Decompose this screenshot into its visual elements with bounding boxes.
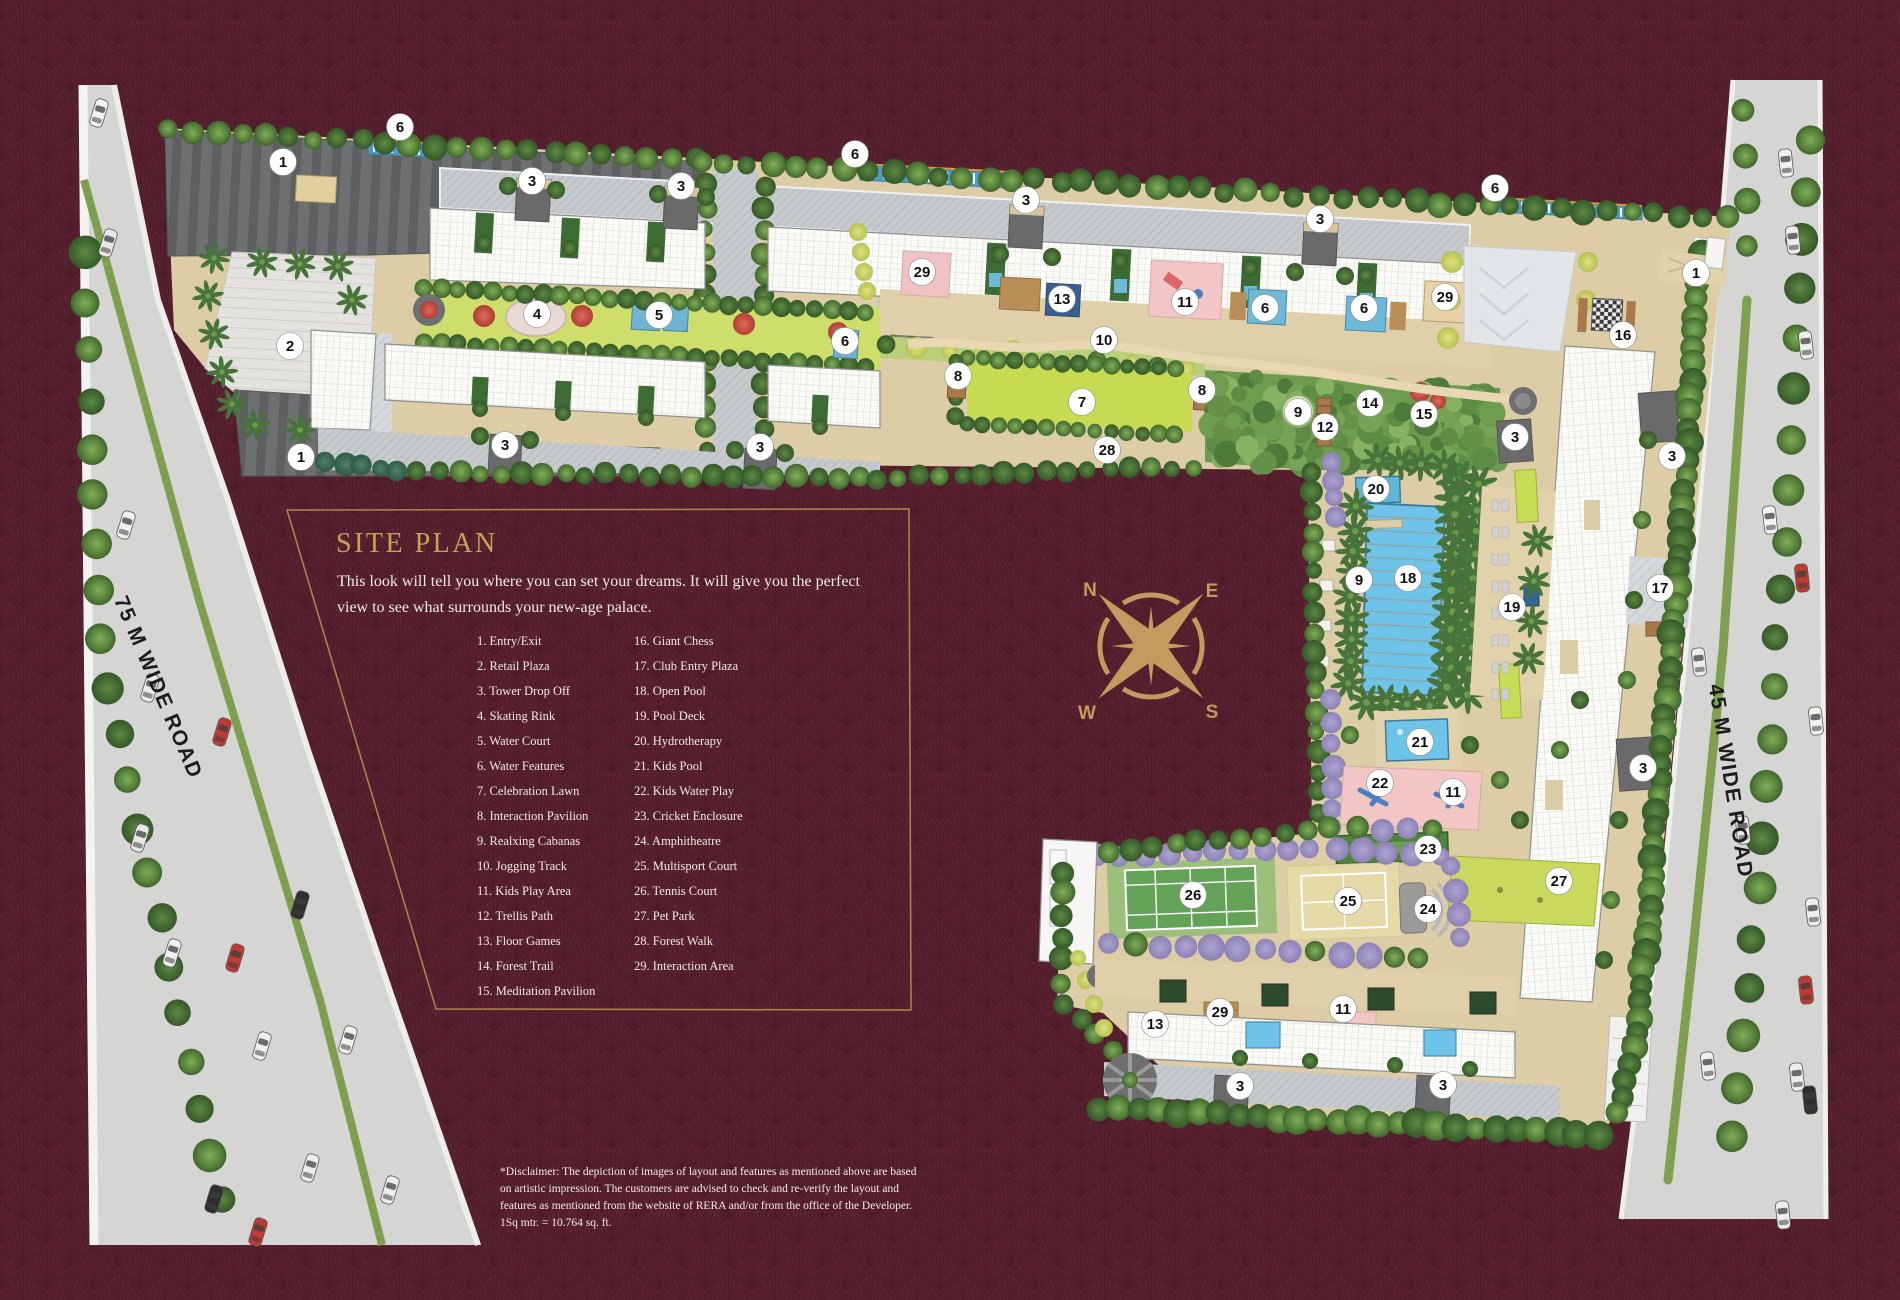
svg-text:2: 2 bbox=[286, 338, 294, 355]
svg-text:15: 15 bbox=[1416, 406, 1433, 423]
svg-text:3: 3 bbox=[528, 173, 536, 190]
svg-text:29: 29 bbox=[1212, 1004, 1229, 1021]
svg-text:1: 1 bbox=[297, 449, 305, 466]
svg-text:3: 3 bbox=[756, 439, 764, 456]
svg-text:11: 11 bbox=[1177, 294, 1193, 311]
svg-text:9: 9 bbox=[1355, 572, 1363, 589]
svg-text:6: 6 bbox=[1360, 300, 1368, 317]
svg-text:6: 6 bbox=[396, 119, 404, 136]
svg-text:3: 3 bbox=[1511, 429, 1519, 446]
svg-text:1: 1 bbox=[279, 154, 287, 171]
svg-text:N: N bbox=[1083, 580, 1097, 601]
svg-text:16: 16 bbox=[1615, 327, 1632, 344]
svg-text:29: 29 bbox=[1437, 289, 1454, 306]
svg-text:23: 23 bbox=[1420, 841, 1437, 858]
svg-text:21: 21 bbox=[1412, 734, 1429, 751]
svg-text:3: 3 bbox=[1668, 448, 1676, 465]
svg-text:26: 26 bbox=[1185, 887, 1202, 904]
svg-text:10: 10 bbox=[1096, 332, 1113, 349]
svg-text:6: 6 bbox=[851, 146, 859, 163]
svg-text:11: 11 bbox=[1445, 784, 1461, 801]
svg-text:19: 19 bbox=[1504, 599, 1521, 616]
svg-text:3: 3 bbox=[1236, 1078, 1244, 1095]
svg-text:7: 7 bbox=[1078, 394, 1086, 411]
svg-text:E: E bbox=[1206, 581, 1219, 602]
svg-text:8: 8 bbox=[1198, 382, 1206, 399]
svg-text:17: 17 bbox=[1652, 580, 1669, 597]
svg-text:22: 22 bbox=[1372, 775, 1389, 792]
svg-text:28: 28 bbox=[1099, 442, 1116, 459]
svg-text:8: 8 bbox=[954, 368, 962, 385]
svg-text:25: 25 bbox=[1340, 893, 1357, 910]
svg-text:4: 4 bbox=[533, 306, 542, 323]
svg-text:1: 1 bbox=[1692, 265, 1700, 282]
svg-text:3: 3 bbox=[1639, 760, 1647, 777]
svg-text:5: 5 bbox=[655, 307, 663, 324]
svg-text:3: 3 bbox=[501, 437, 509, 454]
svg-text:14: 14 bbox=[1362, 395, 1379, 412]
svg-text:27: 27 bbox=[1551, 873, 1568, 890]
svg-text:3: 3 bbox=[677, 178, 685, 195]
svg-text:20: 20 bbox=[1368, 481, 1385, 498]
svg-text:S: S bbox=[1206, 702, 1219, 723]
svg-text:13: 13 bbox=[1054, 291, 1071, 308]
svg-text:11: 11 bbox=[1335, 1001, 1351, 1018]
svg-text:29: 29 bbox=[914, 264, 931, 281]
svg-text:24: 24 bbox=[1420, 901, 1437, 918]
svg-text:3: 3 bbox=[1316, 211, 1324, 228]
svg-text:18: 18 bbox=[1400, 570, 1417, 587]
svg-text:6: 6 bbox=[1261, 300, 1269, 317]
svg-text:12: 12 bbox=[1317, 419, 1334, 436]
svg-text:3: 3 bbox=[1439, 1077, 1447, 1094]
svg-text:6: 6 bbox=[841, 333, 849, 350]
svg-text:13: 13 bbox=[1147, 1016, 1164, 1033]
svg-text:3: 3 bbox=[1022, 192, 1030, 209]
svg-text:6: 6 bbox=[1491, 180, 1499, 197]
svg-text:W: W bbox=[1078, 703, 1096, 724]
svg-text:9: 9 bbox=[1294, 404, 1302, 421]
